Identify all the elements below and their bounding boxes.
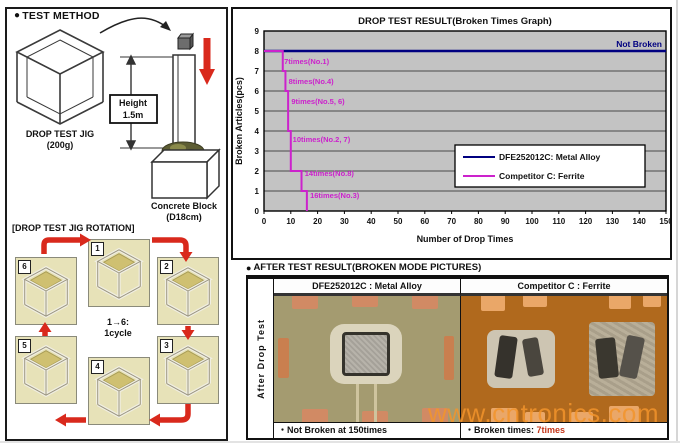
y-tick-label: 4 <box>255 127 260 136</box>
x-axis-label: Number of Drop Times <box>417 234 514 244</box>
watermark-text: www.cntronics.com <box>428 398 659 429</box>
annotation: 16times(No.3) <box>310 191 360 200</box>
rotation-photo-2: 2 <box>157 257 219 325</box>
drop-test-chart-panel: 0123456789010203040506070809010011012013… <box>231 7 672 260</box>
rotation-photo-4: 4 <box>88 357 150 425</box>
photo-number-badge: 5 <box>18 339 31 353</box>
page-edge <box>676 0 678 443</box>
column-header-ferrite: Competitor C : Ferrite <box>460 279 667 296</box>
x-tick-label: 70 <box>447 217 456 226</box>
test-method-title: ● TEST METHOD <box>14 10 100 22</box>
after-test-row-label-cell: After Drop Test <box>248 279 274 438</box>
legend-label: DFE252012C: Metal Alloy <box>499 152 601 162</box>
copper-pad <box>352 296 378 307</box>
rotation-photo-3: 3 <box>157 336 219 404</box>
x-tick-label: 100 <box>525 217 539 226</box>
copper-pad <box>609 296 631 309</box>
legend-label: Competitor C: Ferrite <box>499 171 585 181</box>
test-method-title-label: TEST METHOD <box>22 10 99 22</box>
annotation: 8times(No.4) <box>289 77 335 86</box>
copper-pad <box>412 296 438 309</box>
rotation-title: [DROP TEST JIG ROTATION] <box>12 223 135 233</box>
x-tick-label: 110 <box>552 217 565 226</box>
x-tick-label: 130 <box>606 217 620 226</box>
annotation: 14times(No.8) <box>305 169 355 178</box>
copper-trace <box>444 336 454 380</box>
y-tick-label: 9 <box>255 27 260 36</box>
y-tick-label: 8 <box>255 47 260 56</box>
annotation: 10times(No.2, 7) <box>293 135 351 144</box>
x-tick-label: 80 <box>474 217 483 226</box>
annotation: 9times(No.5, 6) <box>291 97 345 106</box>
x-tick-label: 60 <box>420 217 429 226</box>
x-tick-label: 30 <box>340 217 349 226</box>
after-test-title-label: AFTER TEST RESULT(BROKEN MODE PICTURES) <box>253 262 481 273</box>
photo-number-badge: 2 <box>160 260 173 274</box>
y-tick-label: 3 <box>255 147 260 156</box>
copper-trace <box>278 338 289 378</box>
bullet-icon: ● <box>246 263 251 273</box>
y-tick-label: 5 <box>255 107 260 116</box>
chart-title: DROP TEST RESULT(Broken Times Graph) <box>358 16 552 27</box>
x-tick-label: 50 <box>394 217 403 226</box>
photo-number-badge: 6 <box>18 260 31 274</box>
photo-number-badge: 1 <box>91 242 104 256</box>
copper-pad <box>643 296 661 307</box>
annotation: 7times(No.1) <box>284 57 330 66</box>
rotation-photo-5: 5 <box>15 336 77 404</box>
x-tick-label: 150 <box>659 217 670 226</box>
after-test-title: ● AFTER TEST RESULT(BROKEN MODE PICTURES… <box>246 262 669 277</box>
photo-number-badge: 3 <box>160 339 173 353</box>
x-tick-label: 0 <box>262 217 267 226</box>
rotation-cycle-note: 1→6: 1cycle <box>93 317 143 339</box>
x-tick-label: 120 <box>579 217 593 226</box>
copper-pad <box>292 296 318 309</box>
ferrite-fragment <box>595 337 619 379</box>
y-tick-label: 2 <box>255 167 260 176</box>
after-test-row-label: After Drop Test <box>256 319 266 399</box>
drop-test-chart: 0123456789010203040506070809010011012013… <box>233 9 670 258</box>
copper-pad <box>302 409 328 422</box>
bullet-icon: ● <box>14 11 20 21</box>
copper-pad <box>481 296 505 311</box>
solder-trace <box>374 378 377 422</box>
solder-trace <box>356 378 359 422</box>
figure-page: ● TEST METHOD DROP TEST JIG (200g) <box>0 0 680 443</box>
rotation-photo-6: 6 <box>15 257 77 325</box>
column-header-metal-alloy: DFE252012C : Metal Alloy <box>274 279 460 296</box>
y-tick-label: 0 <box>255 207 260 216</box>
x-tick-label: 140 <box>633 217 647 226</box>
y-tick-label: 1 <box>255 187 260 196</box>
metal-alloy-inductor-intact <box>342 332 390 376</box>
x-tick-label: 10 <box>286 217 295 226</box>
rotation-photo-1: 1 <box>88 239 150 307</box>
y-tick-label: 6 <box>255 87 260 96</box>
rotation-cycle-note-line1: 1→6: <box>93 317 143 328</box>
y-axis-label: Broken Articles(pcs) <box>234 77 244 165</box>
copper-pad <box>523 296 547 307</box>
x-tick-label: 20 <box>313 217 322 226</box>
rotation-cycle-note-line2: 1cycle <box>93 328 143 339</box>
x-tick-label: 40 <box>367 217 376 226</box>
x-tick-label: 90 <box>501 217 510 226</box>
y-tick-label: 7 <box>255 67 260 76</box>
series-end-label: Not Broken <box>616 39 662 49</box>
photo-number-badge: 4 <box>91 360 104 374</box>
